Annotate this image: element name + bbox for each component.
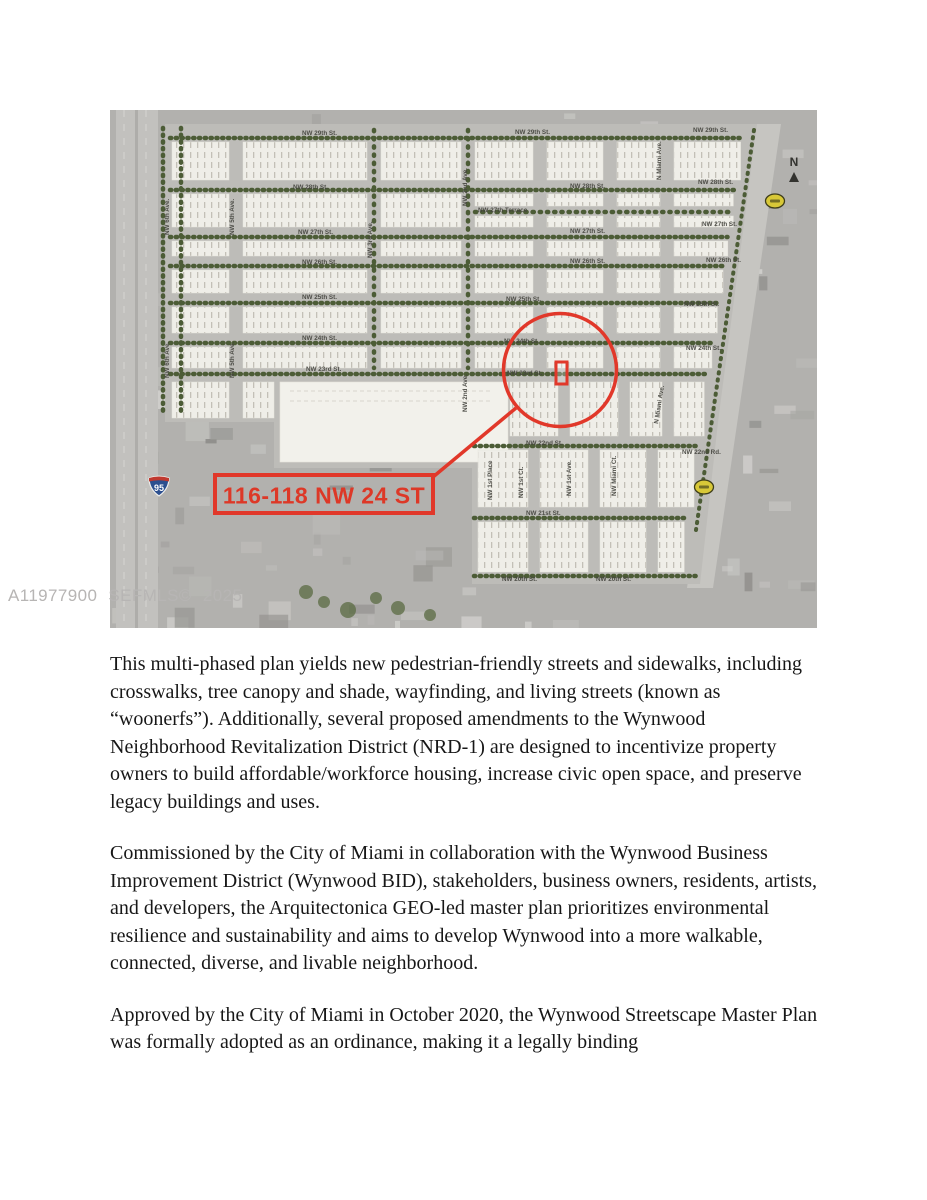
marker-address-label: 116-118 NW 24 ST bbox=[223, 483, 425, 509]
street-label: NW 25th St. bbox=[506, 296, 541, 303]
avenue-label: NW 3rd Ave. bbox=[367, 221, 374, 258]
description-paragraph-1: This multi-phased plan yields new pedest… bbox=[110, 651, 819, 816]
street-label: NW 26th St. bbox=[302, 259, 337, 266]
street-label: NW 24th St. bbox=[686, 345, 721, 352]
listing-photo-master-plan-map: NW 29th St.NW 29th St.NW 29th St.NW 28th… bbox=[110, 110, 817, 628]
avenue-label: NW 5th Ave. bbox=[229, 341, 236, 378]
route-badge-icon bbox=[695, 480, 714, 494]
street-label: NW 22nd Rd. bbox=[682, 449, 721, 456]
street-label: NW 27th St. bbox=[570, 228, 605, 235]
street-label: NW 25th St. bbox=[302, 294, 337, 301]
svg-text:N: N bbox=[790, 155, 799, 169]
street-label: NW 23rd St. bbox=[306, 366, 342, 373]
listing-page: NW 29th St.NW 29th St.NW 29th St.NW 28th… bbox=[0, 0, 927, 1200]
street-label: NW 29th St. bbox=[693, 127, 728, 134]
master-plan-map-svg: NW 29th St.NW 29th St.NW 29th St.NW 28th… bbox=[110, 110, 817, 628]
street-label: NW 24th St. bbox=[302, 335, 337, 342]
street-label: NW 27th Terrace bbox=[478, 207, 528, 214]
street-label: NW 28th St. bbox=[293, 184, 328, 191]
avenue-label: NW 6th Ave. bbox=[164, 341, 171, 378]
marker-property-outline bbox=[556, 362, 567, 384]
svg-text:95: 95 bbox=[154, 483, 164, 493]
street-label: NW 25th St. bbox=[684, 301, 719, 308]
avenue-label: NW 5th Ave. bbox=[229, 198, 236, 235]
description-paragraph-3: Approved by the City of Miami in October… bbox=[110, 1002, 819, 1057]
street-label: NW 26th St. bbox=[706, 257, 741, 264]
avenue-label: NW 6th Ave. bbox=[164, 198, 171, 235]
avenue-label: NW 1st Ave. bbox=[566, 460, 573, 496]
street-label: NW 23rd St. bbox=[507, 370, 543, 377]
avenue-label: NW 1st Place bbox=[487, 460, 494, 500]
avenue-label: NW 2nd Ave. bbox=[462, 374, 469, 412]
street-label: NW 29th St. bbox=[515, 129, 550, 136]
street-label: NW 27th St. bbox=[298, 229, 333, 236]
street-label: NW 28th St. bbox=[570, 183, 605, 190]
avenue-label: N Miami Ave. bbox=[656, 141, 663, 180]
description-paragraph-2: Commissioned by the City of Miami in col… bbox=[110, 840, 819, 978]
street-label: NW 29th St. bbox=[302, 130, 337, 137]
avenue-label: NW 2nd Ave. bbox=[462, 168, 469, 206]
street-label: NW 28th St. bbox=[698, 179, 733, 186]
street-label: NW 20th St. bbox=[596, 576, 631, 583]
street-label: NW 26th St. bbox=[570, 258, 605, 265]
street-label: NW 27th St. bbox=[702, 221, 737, 228]
avenue-label: NW Miami Ct. bbox=[611, 456, 618, 496]
route-badge-icon bbox=[766, 194, 785, 208]
listing-description: This multi-phased plan yields new pedest… bbox=[110, 651, 819, 1081]
mls-watermark: A11977900 SEFMLS© 2025 bbox=[8, 586, 242, 606]
street-label: NW 20th St. bbox=[502, 576, 537, 583]
avenue-label: NW 1st Ct. bbox=[518, 466, 525, 498]
street-label: NW 22nd St. bbox=[526, 440, 563, 447]
street-label: NW 21st St. bbox=[526, 510, 561, 517]
